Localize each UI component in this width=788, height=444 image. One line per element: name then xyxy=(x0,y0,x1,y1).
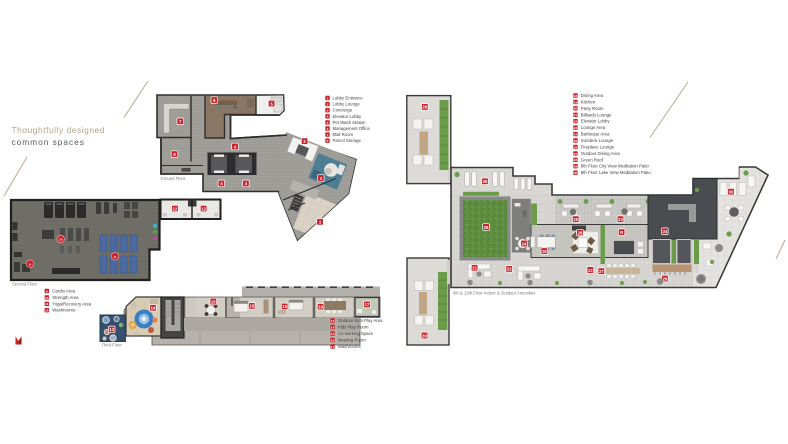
svg-text:9: 9 xyxy=(29,262,31,266)
svg-text:22: 22 xyxy=(507,267,512,272)
svg-text:Outdoor Dining Area: Outdoor Dining Area xyxy=(581,151,621,156)
svg-text:3: 3 xyxy=(327,109,329,113)
svg-text:17: 17 xyxy=(365,302,370,307)
svg-text:26: 26 xyxy=(578,230,583,235)
svg-text:23: 23 xyxy=(574,126,578,130)
svg-text:24: 24 xyxy=(574,133,578,137)
svg-text:13: 13 xyxy=(109,327,114,332)
svg-text:27: 27 xyxy=(599,269,604,274)
svg-text:4: 4 xyxy=(327,115,329,119)
svg-text:12: 12 xyxy=(201,206,206,211)
svg-text:Dining Area: Dining Area xyxy=(581,93,604,98)
svg-text:common spaces: common spaces xyxy=(12,137,85,147)
svg-text:12: 12 xyxy=(173,206,178,211)
svg-text:Kids Play Room: Kids Play Room xyxy=(338,325,369,330)
svg-text:27: 27 xyxy=(574,152,578,156)
svg-text:15: 15 xyxy=(282,304,287,309)
svg-text:18: 18 xyxy=(574,94,578,98)
svg-text:11: 11 xyxy=(113,255,117,259)
svg-text:Fireplace Lounge: Fireplace Lounge xyxy=(581,144,615,149)
svg-text:Sundeck Lounge: Sundeck Lounge xyxy=(581,138,614,143)
svg-text:Second Floor: Second Floor xyxy=(12,282,38,287)
svg-text:28: 28 xyxy=(484,225,489,230)
svg-text:Outdoor Kids Play Area: Outdoor Kids Play Area xyxy=(338,318,383,323)
svg-text:Barbeque Area: Barbeque Area xyxy=(581,132,610,137)
svg-text:8: 8 xyxy=(327,139,329,143)
svg-text:26: 26 xyxy=(574,145,578,149)
svg-text:Management Office: Management Office xyxy=(333,126,371,131)
svg-text:7: 7 xyxy=(327,133,329,137)
svg-text:2: 2 xyxy=(327,103,329,107)
svg-text:5: 5 xyxy=(327,121,329,125)
svg-text:12: 12 xyxy=(45,309,49,313)
svg-text:Cardio Area: Cardio Area xyxy=(52,289,75,294)
svg-text:13: 13 xyxy=(331,319,335,323)
svg-text:11: 11 xyxy=(45,302,49,306)
svg-text:30: 30 xyxy=(574,171,578,175)
svg-text:15: 15 xyxy=(211,299,216,304)
svg-text:29: 29 xyxy=(422,105,427,110)
svg-text:15: 15 xyxy=(331,332,335,336)
svg-text:16: 16 xyxy=(331,338,335,342)
svg-text:Strength Area: Strength Area xyxy=(52,295,79,300)
svg-text:Lobby Lounge: Lobby Lounge xyxy=(333,102,361,107)
svg-text:6th & 13th Floor Indoor & Outd: 6th & 13th Floor Indoor & Outdoor Amenit… xyxy=(453,290,535,295)
svg-text:18: 18 xyxy=(542,249,547,254)
svg-text:22: 22 xyxy=(574,120,578,124)
svg-text:6: 6 xyxy=(327,127,329,131)
svg-text:16: 16 xyxy=(318,305,323,310)
svg-text:Pet Wash Station: Pet Wash Station xyxy=(333,120,367,125)
svg-text:19: 19 xyxy=(574,100,578,104)
svg-text:Elevator Lobby: Elevator Lobby xyxy=(581,119,611,124)
svg-text:Lounge Area: Lounge Area xyxy=(581,125,606,130)
svg-text:10: 10 xyxy=(59,238,63,242)
svg-text:21: 21 xyxy=(574,113,578,117)
svg-text:10: 10 xyxy=(45,296,49,300)
svg-text:Mail Room: Mail Room xyxy=(333,132,354,137)
svg-text:24: 24 xyxy=(663,229,668,234)
svg-text:R: R xyxy=(620,230,623,235)
svg-text:25: 25 xyxy=(573,217,578,222)
svg-text:Ground Floor: Ground Floor xyxy=(161,176,186,181)
svg-text:Parcel Storage: Parcel Storage xyxy=(333,138,362,143)
svg-text:Green Roof: Green Roof xyxy=(581,157,604,162)
svg-text:22: 22 xyxy=(588,268,593,273)
svg-text:Concierge: Concierge xyxy=(333,108,353,113)
svg-text:30: 30 xyxy=(729,190,734,195)
svg-text:Kitchen: Kitchen xyxy=(581,99,596,104)
svg-text:Thoughtfully designed: Thoughtfully designed xyxy=(12,125,106,135)
svg-text:15: 15 xyxy=(249,304,254,309)
svg-text:25: 25 xyxy=(574,139,578,143)
svg-text:30: 30 xyxy=(422,333,427,338)
svg-text:24: 24 xyxy=(522,241,527,246)
svg-text:26: 26 xyxy=(663,276,668,281)
svg-text:14: 14 xyxy=(151,306,156,311)
svg-text:Co-working Space: Co-working Space xyxy=(338,331,374,336)
svg-text:28: 28 xyxy=(574,158,578,162)
svg-text:1: 1 xyxy=(327,96,329,100)
svg-text:Washrooms: Washrooms xyxy=(52,308,75,313)
svg-text:17: 17 xyxy=(331,345,335,349)
svg-text:8th Floor Lake View Meditation: 8th Floor Lake View Meditation Patio xyxy=(581,170,652,175)
svg-text:Elevator Lobby: Elevator Lobby xyxy=(333,114,363,119)
svg-text:Third Floor: Third Floor xyxy=(102,343,123,348)
svg-text:14: 14 xyxy=(331,325,335,329)
svg-text:23: 23 xyxy=(618,217,623,222)
svg-text:Meeting Room: Meeting Room xyxy=(338,338,366,343)
svg-text:Billiards Lounge: Billiards Lounge xyxy=(581,112,612,117)
svg-text:Lobby Entrance: Lobby Entrance xyxy=(333,96,364,101)
svg-text:8th Floor City View Meditation: 8th Floor City View Meditation Patio xyxy=(581,164,650,169)
svg-text:Party Room: Party Room xyxy=(581,106,604,111)
svg-text:29: 29 xyxy=(574,165,578,169)
svg-text:9: 9 xyxy=(46,289,48,293)
svg-text:21: 21 xyxy=(472,266,477,271)
svg-text:20: 20 xyxy=(574,107,578,111)
svg-text:Washrooms: Washrooms xyxy=(338,344,361,349)
svg-text:Yoga/Recovery Area: Yoga/Recovery Area xyxy=(52,301,92,306)
svg-text:26: 26 xyxy=(483,179,488,184)
